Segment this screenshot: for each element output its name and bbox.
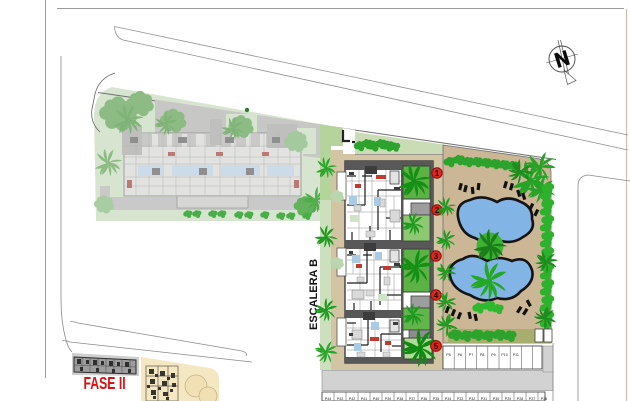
svg-text:P10: P10 — [501, 353, 507, 357]
svg-text:P6: P6 — [458, 353, 462, 357]
svg-text:P5: P5 — [446, 353, 450, 357]
svg-text:1: 1 — [435, 169, 440, 178]
svg-text:P11: P11 — [513, 353, 519, 357]
svg-text:3: 3 — [434, 252, 439, 261]
svg-text:5: 5 — [434, 342, 439, 351]
svg-text:P26: P26 — [541, 397, 547, 401]
svg-text:P37: P37 — [409, 397, 415, 401]
svg-text:P43: P43 — [337, 397, 343, 401]
svg-text:4: 4 — [434, 291, 439, 300]
svg-text:P38: P38 — [397, 397, 403, 401]
svg-text:P44: P44 — [325, 397, 331, 401]
svg-text:ESCALERA B: ESCALERA B — [308, 259, 320, 330]
svg-text:P40: P40 — [373, 397, 379, 401]
svg-text:P7: P7 — [469, 353, 473, 357]
svg-text:P36: P36 — [421, 397, 427, 401]
svg-text:P29: P29 — [505, 397, 511, 401]
svg-text:P8: P8 — [480, 353, 484, 357]
svg-text:FASE II: FASE II — [84, 374, 126, 394]
svg-text:P30: P30 — [493, 397, 499, 401]
svg-text:P27: P27 — [529, 397, 535, 401]
svg-text:P39: P39 — [385, 397, 391, 401]
svg-text:P31: P31 — [481, 397, 487, 401]
svg-text:P34: P34 — [445, 397, 451, 401]
svg-text:P41: P41 — [361, 397, 367, 401]
svg-text:P32: P32 — [469, 397, 475, 401]
svg-text:P33: P33 — [457, 397, 463, 401]
svg-text:P9: P9 — [491, 353, 495, 357]
svg-text:P28: P28 — [517, 397, 523, 401]
svg-text:P35: P35 — [433, 397, 439, 401]
svg-text:P42: P42 — [349, 397, 355, 401]
